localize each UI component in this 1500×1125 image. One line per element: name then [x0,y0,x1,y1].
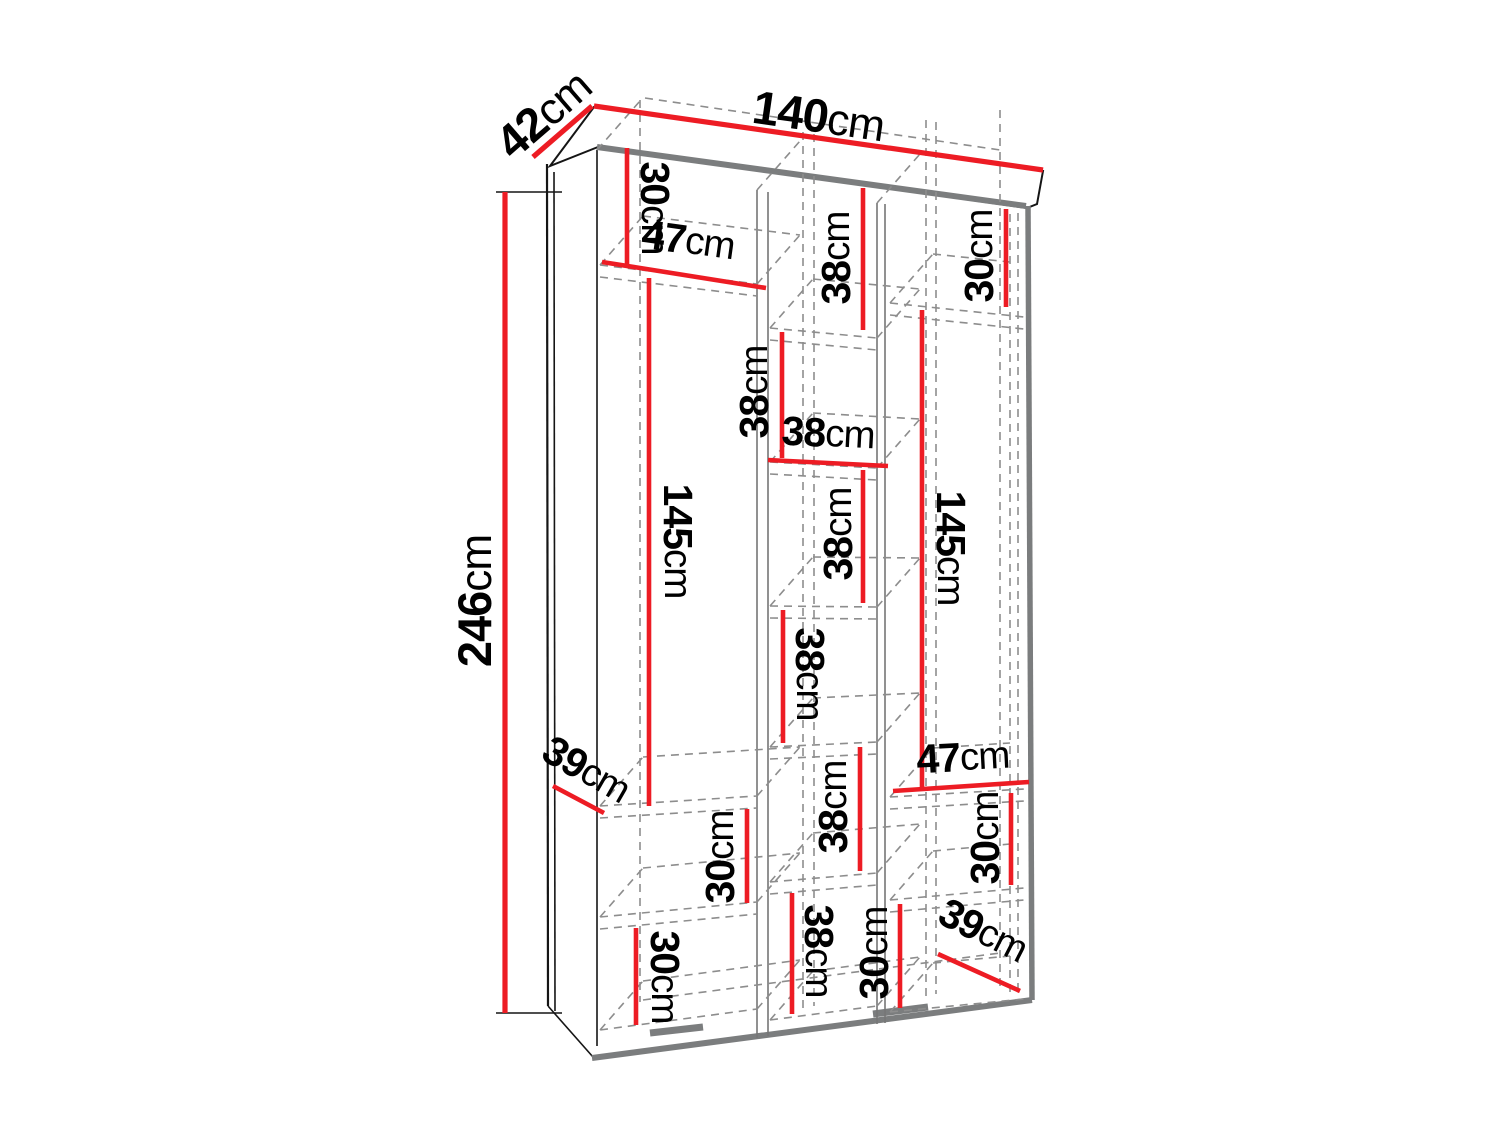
dim-right-lower-30: 30cm [962,792,1011,885]
left-side-panel-inner-edge [554,172,555,1011]
dim-label-right-top-30: 30cm [956,210,1002,303]
dim-mid-bottom-30: 30cm [851,904,900,1008]
dim-label-right-47: 47cm [915,731,1010,782]
dim-label-right-lower-30: 30cm [962,792,1008,885]
dim-left-lower-30: 30cm [697,809,747,903]
dim-right-top-30: 30cm [956,209,1006,307]
dim-label-mid-bottom-30: 30cm [851,907,897,1000]
dim-label-left-145: 145cm [655,484,701,599]
dim-label-mid-38-2: 38cm [731,346,777,439]
dim-label-height-left: 246cm [448,535,501,667]
diagram-canvas: 140cm 42cm 246cm 30cm 47cm 145cm [0,0,1500,1125]
dim-label-right-145: 145cm [928,491,974,606]
wardrobe-dimension-diagram: 140cm 42cm 246cm 30cm 47cm 145cm [0,0,1500,1125]
dim-label-left-bottom-30: 30cm [642,931,688,1024]
dim-label-mid-38-4: 38cm [787,628,833,721]
dim-mid-38-5: 38cm [810,747,860,871]
dim-label-mid-38-5: 38cm [810,761,856,854]
dim-label-left-lower-30: 30cm [697,811,743,904]
dim-mid-38-6: 38cm [792,893,842,1014]
dim-label-mid-38-width: 38cm [781,407,876,458]
left-side-panel-outer-edge [547,164,548,1006]
dim-left-bottom-30: 30cm [636,928,688,1025]
dim-label-mid-38-3: 38cm [815,488,861,581]
dim-label-mid-38-6: 38cm [796,905,842,998]
dim-mid-38-2: 38cm [731,332,782,458]
dim-label-mid-38-1: 38cm [813,212,859,305]
